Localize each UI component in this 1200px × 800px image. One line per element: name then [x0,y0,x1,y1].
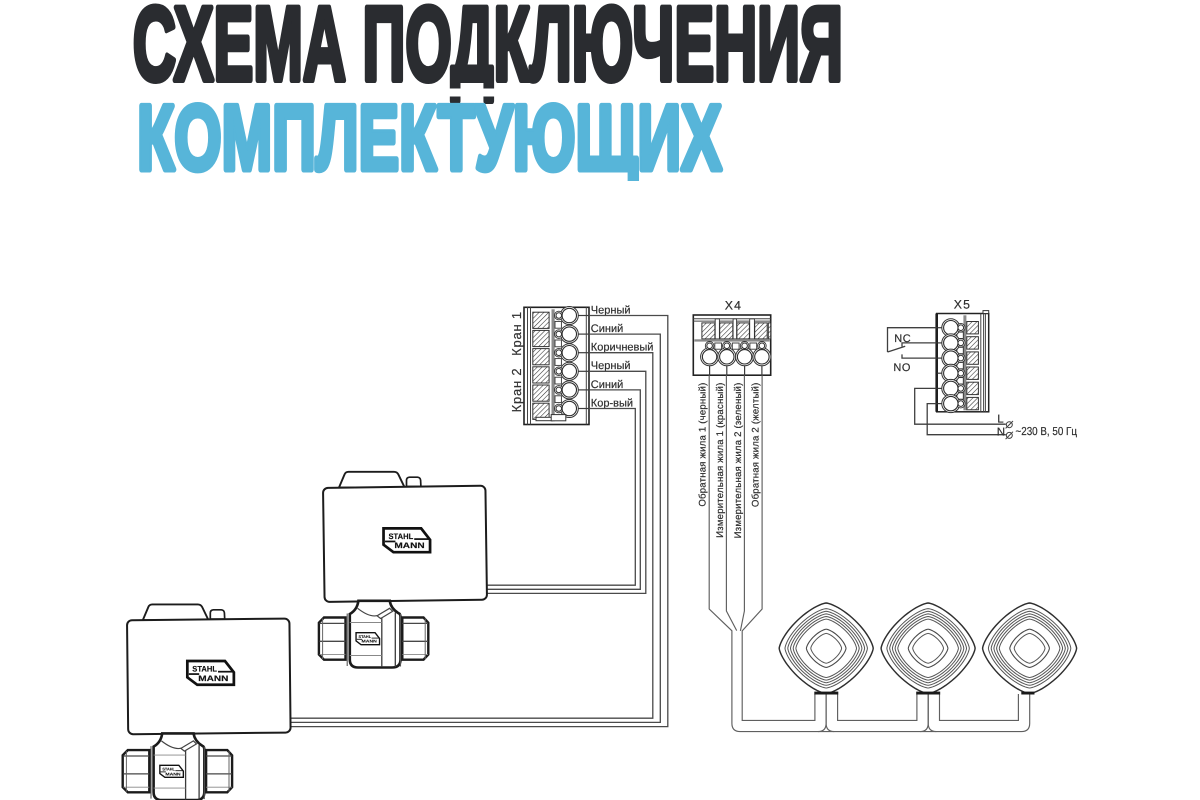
svg-text:Синий: Синий [591,379,623,391]
svg-text:NO: NO [893,362,911,374]
svg-text:STAHL: STAHL [192,665,217,673]
svg-text:MANN: MANN [165,772,180,776]
svg-text:Черный: Черный [591,360,631,372]
svg-text:STAHL: STAHL [388,532,413,540]
svg-text:MANN: MANN [198,674,228,682]
svg-text:X5: X5 [954,298,971,312]
svg-text:КОМПЛЕКТУЮЩИХ: КОМПЛЕКТУЮЩИХ [137,86,722,190]
svg-text:Кран 2: Кран 2 [509,368,524,413]
svg-text:Черный: Черный [591,304,631,316]
svg-text:NC: NC [894,333,911,345]
svg-text:MANN: MANN [362,639,377,643]
svg-text:Измерительная жила 2 (зеленый): Измерительная жила 2 (зеленый) [733,383,744,539]
svg-text:Кор-вый: Кор-вый [591,397,633,409]
svg-text:Измерительная жила 1 (красный): Измерительная жила 1 (красный) [715,383,726,538]
svg-text:L: L [997,414,1004,426]
svg-text:N: N [997,427,1005,439]
svg-text:Коричневый: Коричневый [591,342,654,354]
svg-text:MANN: MANN [394,542,424,550]
svg-text:X4: X4 [725,299,742,313]
svg-text:STAHL: STAHL [162,767,175,771]
svg-text:Обратная жила 2 (желтый): Обратная жила 2 (желтый) [750,383,761,508]
svg-text:STAHL: STAHL [359,635,372,639]
svg-text:Обратная жила 1 (черный): Обратная жила 1 (черный) [698,383,709,507]
svg-text:Кран 1: Кран 1 [509,311,524,356]
svg-text:~230 В, 50 Гц: ~230 В, 50 Гц [1016,426,1078,438]
svg-text:Синий: Синий [591,323,623,335]
